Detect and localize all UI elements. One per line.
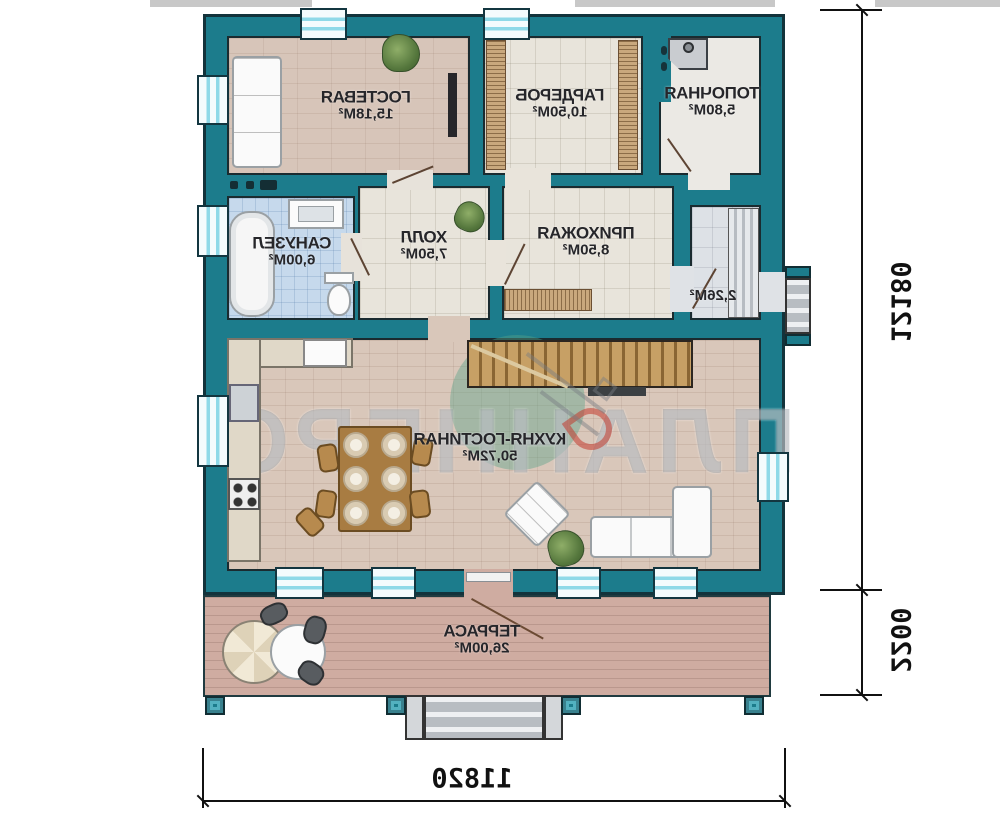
- door-opening: [486, 240, 506, 286]
- kitchen-sink: [229, 384, 259, 422]
- room-area: 26,00М²: [444, 641, 521, 657]
- dimension-extension: [820, 694, 882, 696]
- plate: [343, 432, 369, 458]
- plate: [381, 466, 407, 492]
- window: [556, 567, 601, 599]
- dimension-line-horizontal: [203, 800, 785, 802]
- door-opening: [505, 168, 551, 190]
- room-name: КУХНЯ-ГОСТИНАЯ: [414, 431, 567, 449]
- panel-dot: [230, 181, 238, 189]
- side-porch-steps: [785, 278, 811, 334]
- floor-plan-canvas: ПЛАННЕРС ГОСТЕВАЯ 15,18М² ГАРДЕРОБ 10,50…: [0, 0, 1000, 822]
- room-label-entry: ПРИХОЖАЯ 8,50М²: [537, 225, 634, 260]
- side-porch-cap: [785, 334, 811, 346]
- room-area: 15,18М²: [321, 107, 411, 123]
- window: [275, 567, 324, 599]
- toilet-bowl: [327, 284, 351, 316]
- window: [300, 8, 347, 40]
- room-name: ПРИХОЖАЯ: [537, 225, 634, 243]
- staircase: [467, 340, 693, 388]
- plate: [343, 466, 369, 492]
- wardrobe-rack: [618, 40, 638, 170]
- boiler-dial: [683, 42, 694, 53]
- door-opening: [688, 168, 730, 190]
- entrance-step-rail: [405, 695, 424, 740]
- sofa-bed: [232, 56, 282, 168]
- dimension-terrace-depth: 2200: [885, 607, 916, 672]
- room-label-wardrobe: ГАРДЕРОБ 10,50М²: [516, 87, 605, 122]
- plate: [343, 500, 369, 526]
- window: [483, 8, 530, 40]
- room-name: ТОПОЧНАЯ: [665, 85, 760, 103]
- side-door-opening: [759, 272, 787, 312]
- room-name: ХОЛЛ: [401, 229, 448, 247]
- room-area: 50,72М²: [414, 449, 567, 465]
- stove: [228, 478, 260, 510]
- panel-switch: [260, 180, 277, 190]
- terrace-post: [386, 696, 406, 715]
- room-label-terrace: ТЕРРАСА 26,00М²: [444, 623, 521, 658]
- plate: [381, 432, 407, 458]
- window: [197, 205, 229, 257]
- terrace-post: [205, 696, 225, 715]
- terrace-door-threshold: [466, 572, 511, 582]
- chair: [316, 443, 340, 474]
- top-crop-bar: [875, 0, 1000, 7]
- wardrobe-rack: [486, 40, 506, 170]
- room-area: 2,26М²: [690, 288, 737, 304]
- window: [371, 567, 416, 599]
- room-label-hall: ХОЛЛ 7,50М²: [401, 229, 448, 264]
- radiator-dot: [661, 46, 667, 55]
- room-label-kitchen: КУХНЯ-ГОСТИНАЯ 50,72М²: [414, 431, 567, 466]
- dimension-height-total: 12180: [885, 261, 916, 342]
- room-name: ГАРДЕРОБ: [516, 87, 605, 105]
- room-area: 5,80М²: [665, 103, 760, 119]
- plate: [381, 500, 407, 526]
- entrance-steps: [424, 695, 544, 740]
- plant-icon: [382, 34, 420, 72]
- radiator-dot: [661, 62, 667, 71]
- kitchen-counter: [227, 338, 261, 562]
- toilet-tank: [324, 272, 354, 284]
- tv-panel: [448, 73, 457, 137]
- corner-sofa: [672, 486, 712, 558]
- panel-dot: [246, 181, 254, 189]
- top-crop-bar: [150, 0, 312, 7]
- window: [653, 567, 698, 599]
- passage-opening: [428, 316, 470, 342]
- room-area: 6,00М²: [253, 253, 332, 269]
- room-label-bathroom: САНУЗЕЛ 6,00М²: [253, 235, 332, 270]
- room-label-vestibule: 2,26М²: [690, 288, 737, 304]
- chair: [408, 489, 431, 519]
- dimension-width-total: 11820: [431, 764, 512, 795]
- window: [197, 75, 229, 125]
- window: [757, 452, 789, 502]
- room-area: 10,50М²: [516, 105, 605, 121]
- sink-bowl: [298, 206, 334, 222]
- terrace-post: [744, 696, 764, 715]
- dimension-extension: [820, 9, 882, 11]
- dimension-extension: [820, 589, 882, 591]
- window: [197, 395, 229, 467]
- room-label-guest: ГОСТЕВАЯ 15,18М²: [321, 89, 411, 124]
- side-porch-cap: [785, 266, 811, 278]
- terrace-post: [561, 696, 581, 715]
- shoe-rack: [504, 289, 592, 311]
- room-area: 7,50М²: [401, 247, 448, 263]
- room-name: САНУЗЕЛ: [253, 235, 332, 253]
- room-name: ТЕРРАСА: [444, 623, 521, 641]
- room-area: 8,50М²: [537, 243, 634, 259]
- fridge: [303, 339, 347, 367]
- room-label-boiler: ТОПОЧНАЯ 5,80М²: [665, 85, 760, 120]
- top-crop-bar: [575, 0, 775, 7]
- room-name: ГОСТЕВАЯ: [321, 89, 411, 107]
